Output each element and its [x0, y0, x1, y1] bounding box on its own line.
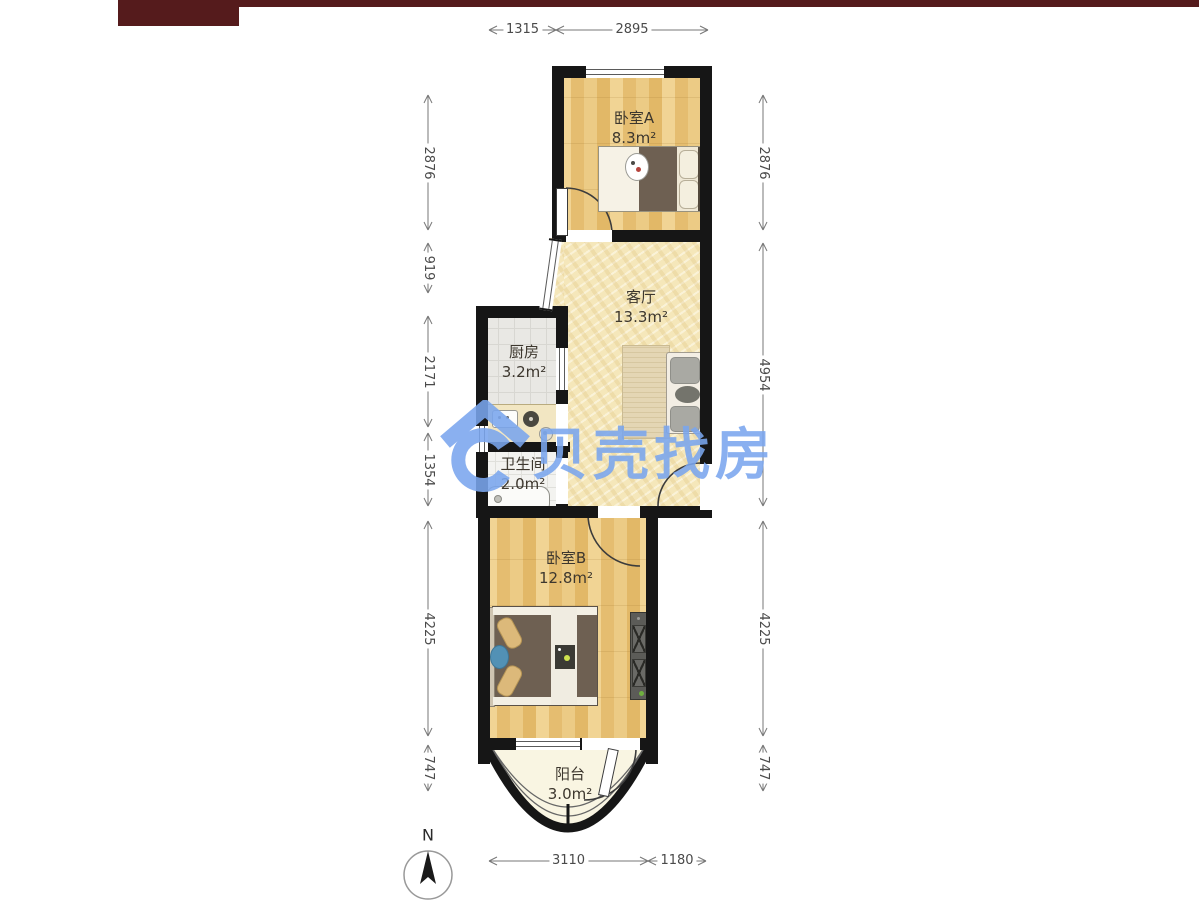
bedroom-b-door-opening — [598, 506, 640, 518]
dimension-line — [428, 783, 432, 791]
dimension-line — [763, 222, 767, 230]
floor-plan: 卧室A 8.3m² 客厅 13.3m² 厨房 3.2m² 卫生间 2.0m² 卧… — [0, 0, 1199, 904]
dimension-label: 919 — [421, 253, 435, 284]
room-label-bedroom-a: 卧室A 8.3m² — [612, 108, 656, 149]
dimension-label: 2895 — [612, 23, 651, 37]
watermark-text: 贝壳找房 — [532, 410, 776, 491]
dimension-line — [424, 498, 428, 506]
balcony-window — [514, 738, 582, 750]
tray-dot-red — [636, 167, 641, 172]
dimension-line — [424, 222, 428, 230]
dimension-label: 3110 — [549, 854, 588, 868]
room-name: 卧室B — [539, 548, 593, 568]
tray-dot-yellow — [564, 655, 570, 661]
bed-tray — [555, 645, 575, 669]
pillow — [679, 180, 699, 209]
sheet — [493, 607, 597, 615]
dimension-line — [428, 433, 432, 441]
dimension-line — [556, 30, 564, 34]
wall — [646, 506, 658, 750]
room-name: 客厅 — [614, 287, 668, 307]
room-label-bedroom-b: 卧室B 12.8m² — [539, 548, 593, 589]
dimension-line — [428, 498, 432, 506]
dimension-line — [763, 728, 767, 736]
bedroom-a-bed — [598, 146, 702, 212]
dimension-line — [648, 861, 656, 865]
dimension-line — [428, 316, 432, 324]
room-area: 3.0m² — [548, 784, 592, 804]
dimension-line — [428, 285, 432, 293]
dimension-label: 1315 — [503, 23, 542, 37]
dimension-line — [489, 861, 497, 865]
dimension-line — [424, 243, 428, 251]
dimension-line — [759, 728, 763, 736]
room-area: 3.2m² — [502, 362, 546, 382]
dimension-line — [759, 243, 763, 251]
pillow — [679, 150, 699, 179]
dimension-line — [698, 861, 706, 865]
dimension-line — [489, 26, 497, 30]
dimension-line — [759, 521, 763, 529]
watermark: 贝壳找房 — [440, 400, 800, 500]
dimension-line — [640, 861, 648, 865]
dimension-line — [759, 95, 763, 103]
wall — [478, 506, 490, 750]
bed-tray — [625, 153, 649, 181]
dimension-line — [759, 783, 763, 791]
dimension-line — [763, 783, 767, 791]
dimension-line — [548, 26, 556, 30]
dimension-line — [424, 285, 428, 293]
room-area: 8.3m² — [612, 128, 656, 148]
dimension-label: 2876 — [756, 143, 770, 182]
compass-north-label: N — [422, 826, 434, 845]
wall — [478, 750, 490, 764]
dimension-line — [424, 316, 428, 324]
room-label-kitchen: 厨房 3.2m² — [502, 342, 546, 383]
dimension-line — [700, 30, 708, 34]
dimension-label: 4225 — [421, 609, 435, 648]
wall — [476, 306, 568, 318]
dimension-line — [548, 30, 556, 34]
room-label-living-room: 客厅 13.3m² — [614, 287, 668, 328]
dimension-line — [428, 95, 432, 103]
knob — [637, 617, 640, 620]
bedroom-b-bed — [492, 606, 598, 706]
dimension-label: 1180 — [657, 854, 696, 868]
bedroom-a-door-leaf — [556, 188, 568, 236]
room-label-balcony: 阳台 3.0m² — [548, 764, 592, 805]
beike-house-logo-icon — [440, 400, 530, 492]
dimension-label: 2876 — [421, 143, 435, 182]
dimension-label: 747 — [421, 753, 435, 784]
room-name: 阳台 — [548, 764, 592, 784]
dimension-line — [648, 857, 656, 861]
dimension-line — [640, 857, 648, 861]
dimension-line — [424, 521, 428, 529]
wardrobe-door — [632, 659, 646, 687]
dimension-label: 4954 — [756, 355, 770, 394]
compass-needle — [420, 851, 436, 884]
room-name: 厨房 — [502, 342, 546, 362]
kitchen-pass-window — [556, 346, 568, 392]
dimension-line — [700, 26, 708, 30]
pillow-round-blue — [490, 645, 509, 669]
wall — [476, 506, 712, 518]
dimension-line — [763, 243, 767, 251]
wardrobe-door — [632, 625, 646, 653]
tray-dot — [631, 161, 635, 165]
dimension-line — [759, 222, 763, 230]
wall — [646, 750, 658, 764]
sofa-cushion — [670, 357, 700, 384]
room-name: 卧室A — [612, 108, 656, 128]
dimension-line — [763, 95, 767, 103]
dimension-line — [428, 521, 432, 529]
dimension-line — [424, 433, 428, 441]
dimension-line — [428, 243, 432, 251]
plant-dot — [639, 691, 644, 696]
sheet — [493, 697, 597, 705]
dimension-line — [424, 95, 428, 103]
dimension-label: 747 — [756, 753, 770, 784]
dimension-line — [489, 857, 497, 861]
dimension-line — [424, 419, 428, 427]
bedroom-a-window — [584, 66, 666, 78]
dimension-label: 4225 — [756, 609, 770, 648]
dimension-line — [556, 26, 564, 30]
room-area: 13.3m² — [614, 307, 668, 327]
dimension-line — [489, 30, 497, 34]
bedroom-a-door-opening — [566, 230, 612, 242]
dimension-line — [428, 728, 432, 736]
dimension-line — [428, 419, 432, 427]
bedroom-b-door-arc — [588, 514, 640, 566]
dimension-label: 1354 — [421, 450, 435, 489]
dimension-line — [424, 783, 428, 791]
dimension-line — [424, 728, 428, 736]
room-area: 12.8m² — [539, 568, 593, 588]
tray-dot — [558, 648, 561, 651]
dimension-line — [428, 222, 432, 230]
dimension-line — [698, 857, 706, 861]
dimension-label: 2171 — [421, 352, 435, 391]
dimension-line — [763, 521, 767, 529]
